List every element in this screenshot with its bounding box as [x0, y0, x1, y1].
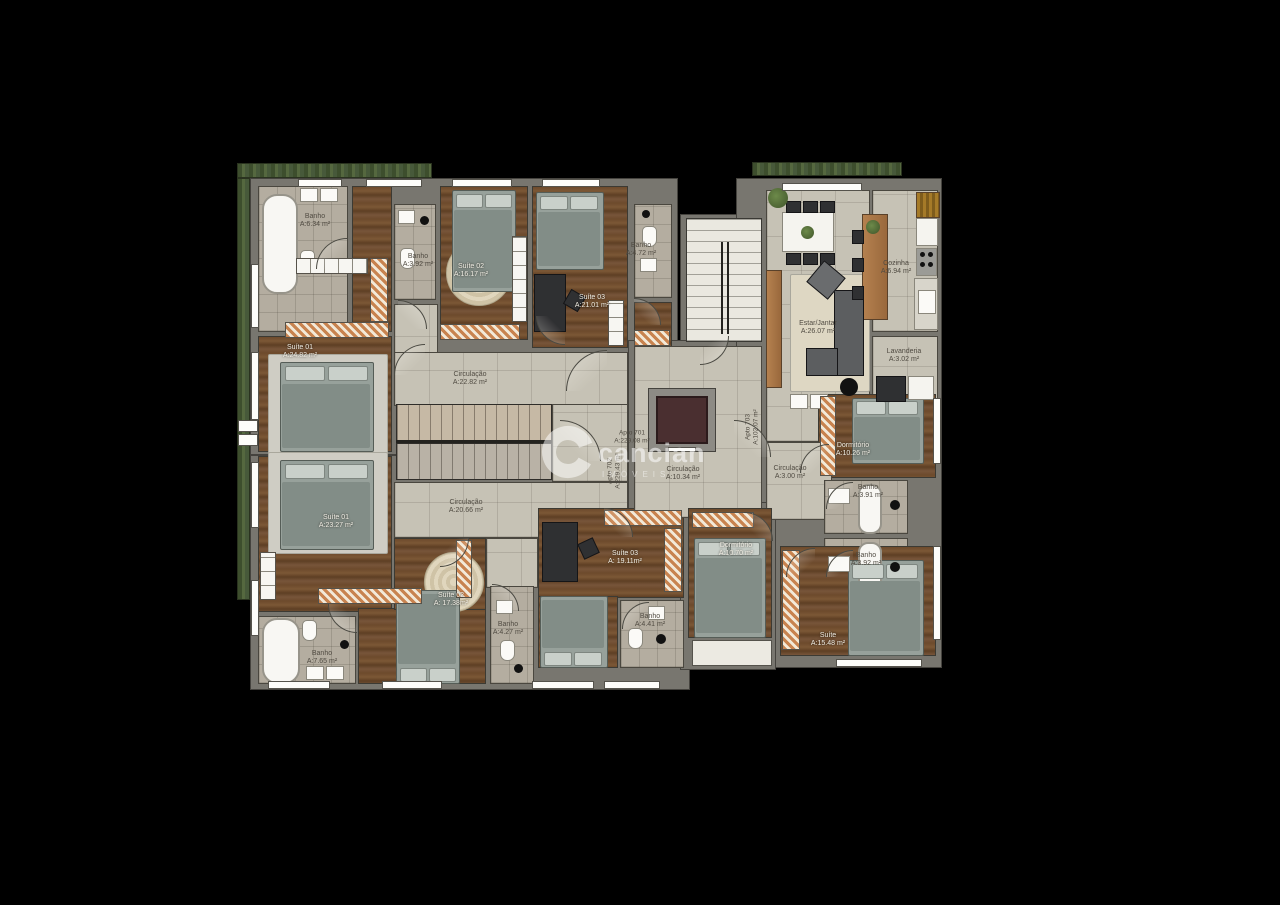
pillow [285, 464, 325, 479]
room-name: Banho [300, 213, 330, 221]
sofa-chaise [806, 348, 838, 376]
window [251, 352, 259, 420]
blanket [538, 212, 600, 266]
window [366, 179, 422, 187]
blanket [850, 581, 920, 651]
room-area: A:6.94 m² [881, 268, 911, 276]
hedge-left [237, 178, 250, 600]
room-label-banho-701c: Banho A:4.72 m² [626, 242, 656, 258]
closet-hatch [440, 324, 520, 340]
pillow [285, 366, 325, 381]
ac-unit [238, 434, 258, 446]
room-name: Dormitório [836, 442, 870, 450]
room-name: Banho [493, 621, 523, 629]
fire-stair-rail-b [727, 242, 729, 334]
room-label-cozinha: Cozinha A:6.94 m² [881, 260, 911, 276]
shower-drain [890, 500, 900, 510]
room-label-suite02-702: Suíte 02 A: 17.38m² [434, 592, 468, 608]
c-ring-icon [540, 424, 596, 480]
bath-sink [640, 258, 657, 272]
room-name: Circulação [449, 499, 483, 507]
room-area: A:6.34 m² [300, 221, 330, 229]
shower-drain [656, 634, 666, 644]
bath-sink [398, 210, 415, 224]
room-area: A: 19.11m² [608, 558, 642, 566]
room-name: Cozinha [881, 260, 911, 268]
pillow [429, 668, 456, 682]
room-name: Banho [853, 484, 883, 492]
pillow [485, 194, 512, 208]
window [836, 659, 922, 667]
room-label-suite01-701: Suíte 01 A:24.82 m² [283, 344, 317, 360]
desk [542, 522, 578, 582]
window [452, 179, 512, 187]
stool [852, 258, 864, 272]
apto-name: Apto 701 [614, 430, 649, 438]
window [251, 580, 259, 636]
shower-drain [890, 562, 900, 572]
room-label-banho-701b: Banho A:3.92 m² [403, 253, 433, 269]
floor-circ-702-arm [486, 538, 538, 588]
closet-hatch [318, 588, 422, 604]
apto-area: A:102.07 m² [752, 409, 760, 444]
room-label-banho-703a: Banho A:3.91 m² [853, 484, 883, 500]
dining-chair [786, 253, 801, 265]
burner [920, 262, 925, 267]
room-name: Suíte 03 [608, 550, 642, 558]
shower-drain [514, 664, 523, 673]
burner [928, 252, 933, 257]
kitchen-sink [918, 290, 936, 314]
pillow [540, 196, 568, 210]
closet-shelf [512, 236, 527, 322]
room-label-suite03-701: Suíte 03 A:21.01 m² [575, 294, 609, 310]
dining-chair [786, 201, 801, 213]
closet-shelf [260, 552, 276, 600]
window [251, 264, 259, 328]
room-label-circ-702: Circulação A:20.66 m² [449, 499, 483, 515]
hedge-top-right [752, 162, 902, 176]
pillow [400, 668, 427, 682]
room-label-banho-701a: Banho A:6.34 m² [300, 213, 330, 229]
island-plant [866, 220, 880, 234]
room-area: A:7.65 m² [307, 658, 337, 666]
pillow [570, 196, 598, 210]
apto-703-label: Apto 703 A:102.07 m² [745, 409, 760, 444]
room-name: Lavanderia [887, 348, 922, 356]
pillow [328, 464, 368, 479]
ac-unit [238, 420, 258, 432]
pillow [888, 401, 918, 415]
room-name: Banho [403, 253, 433, 261]
room-area: A:4.72 m² [626, 250, 656, 258]
brand-logo-icon [540, 424, 596, 480]
room-name: Suíte [811, 632, 845, 640]
window [251, 462, 259, 528]
room-area: A:15.48 m² [811, 640, 845, 648]
room-name: Dormitório [719, 542, 753, 550]
room-area: A:4.27 m² [493, 629, 523, 637]
closet-hatch [634, 330, 670, 346]
stair-flight-upper [396, 404, 552, 441]
closet-hatch [285, 322, 389, 338]
room-name: Suíte 03 [575, 294, 609, 302]
closet-shelf [608, 300, 624, 346]
room-label-suite01-702: Suíte 01 A:23.27 m² [319, 514, 353, 530]
stool [852, 286, 864, 300]
room-name: Suíte 01 [319, 514, 353, 522]
room-label-dormitorio2-703: Dormitório A:10.70 m² [719, 542, 753, 558]
stair-railing [396, 440, 552, 443]
pillow [856, 401, 886, 415]
table-centerpiece [801, 226, 814, 239]
blanket [542, 600, 604, 648]
room-area: A:20.66 m² [449, 507, 483, 515]
floor-terrace-703 [692, 640, 772, 666]
room-name: Suíte 01 [283, 344, 317, 352]
room-area: A:3.00 m² [773, 473, 806, 481]
room-label-banho-702c: Banho A:4.41 m² [635, 613, 665, 629]
elevator-cab [656, 396, 708, 444]
stair-flight-lower [396, 443, 552, 480]
room-name: Banho [626, 242, 656, 250]
room-area: A:3.92 m² [403, 261, 433, 269]
room-label-circ-703: Circulação A:3.00 m² [773, 465, 806, 481]
window [782, 183, 862, 191]
room-name: Circulação [773, 465, 806, 473]
toilet [302, 620, 317, 641]
shower-drain [642, 210, 650, 218]
tv-sideboard [766, 270, 782, 388]
room-area: A:10.34 m² [666, 474, 700, 482]
brand-wordmark: cancian [598, 438, 706, 469]
room-area: A:4.41 m² [635, 621, 665, 629]
room-area: A:24.82 m² [283, 352, 317, 360]
blanket [696, 558, 762, 633]
sofa [834, 290, 864, 376]
room-area: A:23.27 m² [319, 522, 353, 530]
room-label-suite02-701: Suíte 02 A:16.17 m² [454, 263, 488, 279]
bath-sink [306, 666, 324, 680]
room-label-banho-702a: Banho A:7.65 m² [307, 650, 337, 666]
burner [920, 252, 925, 257]
window [532, 681, 594, 689]
window [382, 681, 442, 689]
dining-chair [803, 253, 818, 265]
vanity-sink [790, 394, 808, 409]
closet-hatch [370, 258, 388, 322]
hedge-top-left [237, 163, 432, 178]
floor-lamp [840, 378, 858, 396]
window [268, 681, 330, 689]
window [298, 179, 342, 187]
window [933, 546, 941, 640]
dryer [908, 376, 934, 400]
room-name: Banho [307, 650, 337, 658]
window [542, 179, 600, 187]
room-area: A:3.02 m² [887, 356, 922, 364]
fridge [916, 218, 938, 246]
room-area: A:3.91 m² [853, 492, 883, 500]
room-label-banho-702b: Banho A:4.27 m² [493, 621, 523, 637]
plant [768, 188, 788, 208]
room-area: A:10.70 m² [719, 550, 753, 558]
room-label-banho-703b: Banho A:3.92 m² [851, 552, 881, 568]
room-label-dormitorio1-703: Dormitório A:10.26 m² [836, 442, 870, 458]
room-name: Circulação [453, 371, 487, 379]
room-name: Suíte 02 [454, 263, 488, 271]
pillow [574, 652, 602, 666]
room-area: A:26.07 m² [799, 328, 837, 336]
room-area: A: 17.38m² [434, 600, 468, 608]
stove [916, 248, 937, 276]
bath-sink [300, 188, 318, 202]
room-label-lavanderia: Lavanderia A:3.02 m² [887, 348, 922, 364]
dining-chair [820, 201, 835, 213]
fire-stair-rail-a [721, 242, 723, 334]
bathtub [262, 618, 300, 684]
closet-hatch [664, 528, 682, 592]
room-area: A:21.01 m² [575, 302, 609, 310]
room-label-suite03-702: Suíte 03 A: 19.11m² [608, 550, 642, 566]
room-label-circ-701: Circulação A:22.82 m² [453, 371, 487, 387]
pillow [544, 652, 572, 666]
brand-tagline: IMÓVEIS [602, 470, 670, 479]
toilet [628, 628, 643, 649]
room-area: A:10.26 m² [836, 450, 870, 458]
shower-drain [340, 640, 349, 649]
dining-chair [803, 201, 818, 213]
fire-stair [686, 218, 762, 342]
bath-sink [320, 188, 338, 202]
washing-machine [876, 376, 906, 402]
kitchen-cabinet [916, 192, 940, 218]
pillow [456, 194, 483, 208]
room-name: Banho [635, 613, 665, 621]
room-area: A:22.82 m² [453, 379, 487, 387]
room-name: Estar/Jantar [799, 320, 837, 328]
pillow [328, 366, 368, 381]
window [933, 398, 941, 464]
bath-sink [326, 666, 344, 680]
floorplan-canvas: Banho A:6.34 m² Suíte 01 A:24.82 m² Banh… [0, 0, 1280, 905]
room-label-estar-jantar: Estar/Jantar A:26.07 m² [799, 320, 837, 336]
bathtub [262, 194, 298, 294]
shower-drain [420, 216, 429, 225]
room-area: A:3.92 m² [851, 560, 881, 568]
room-name: Suíte 02 [434, 592, 468, 600]
room-label-suite-703: Suíte A:15.48 m² [811, 632, 845, 648]
toilet [500, 640, 515, 661]
room-area: A:16.17 m² [454, 271, 488, 279]
burner [928, 262, 933, 267]
apto-name: Apto 703 [745, 409, 753, 444]
stool [852, 230, 864, 244]
window [604, 681, 660, 689]
room-name: Banho [851, 552, 881, 560]
blanket [282, 384, 370, 448]
